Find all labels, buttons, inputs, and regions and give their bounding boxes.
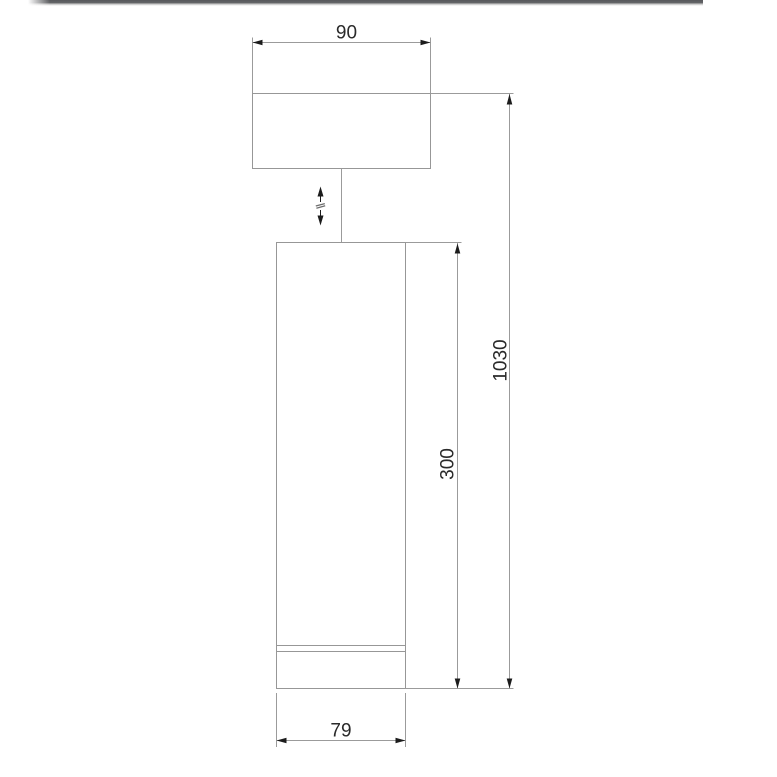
svg-text:1030: 1030 xyxy=(491,339,512,381)
svg-text:90: 90 xyxy=(336,23,357,44)
svg-text:79: 79 xyxy=(330,721,351,742)
svg-text:300: 300 xyxy=(438,448,459,480)
